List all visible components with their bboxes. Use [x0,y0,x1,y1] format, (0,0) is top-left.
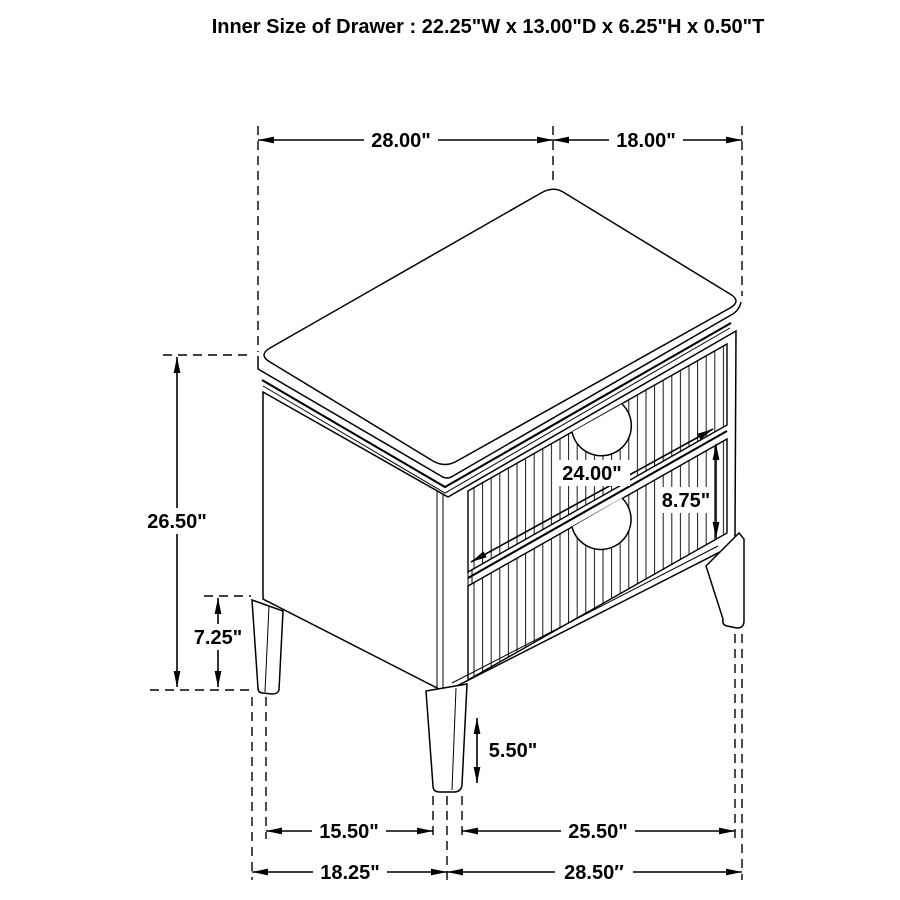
svg-text:28.50″: 28.50″ [564,862,624,884]
dim-base-width-side-label: 28.50″ [555,859,633,885]
svg-text:5.50": 5.50" [489,740,537,762]
dim-leg-section-label: 7.25" [186,624,250,650]
dim-leg-span-front-label: 15.50" [312,818,386,844]
dim-drawer-height-label: 8.75" [660,487,712,513]
svg-text:15.50": 15.50" [319,821,379,843]
dim-drawer-width-label: 24.00" [554,460,630,486]
dim-base-width-front-label: 18.25" [313,859,387,885]
page-title: Inner Size of Drawer : 22.25"W x 13.00"D… [212,16,765,38]
svg-text:8.75": 8.75" [662,490,710,512]
dim-top-depth-label: 18.00" [609,127,683,153]
svg-text:25.50": 25.50" [568,821,628,843]
dim-leg-span-side-label: 25.50" [561,818,635,844]
svg-text:24.00": 24.00" [562,463,622,485]
svg-text:18.00": 18.00" [616,130,676,152]
svg-text:7.25": 7.25" [194,627,242,649]
dim-leg-height-label: 5.50" [484,737,542,763]
dim-overall-height-label: 26.50" [140,508,214,534]
svg-text:18.25": 18.25" [320,862,380,884]
dim-top-width-label: 28.00" [364,127,438,153]
diagram-canvas: Inner Size of Drawer : 22.25"W x 13.00"D… [0,0,900,900]
svg-text:28.00": 28.00" [371,130,431,152]
svg-text:26.50": 26.50" [147,511,207,533]
front-leg [426,684,467,792]
dimension-diagram: Inner Size of Drawer : 22.25"W x 13.00"D… [0,0,900,900]
